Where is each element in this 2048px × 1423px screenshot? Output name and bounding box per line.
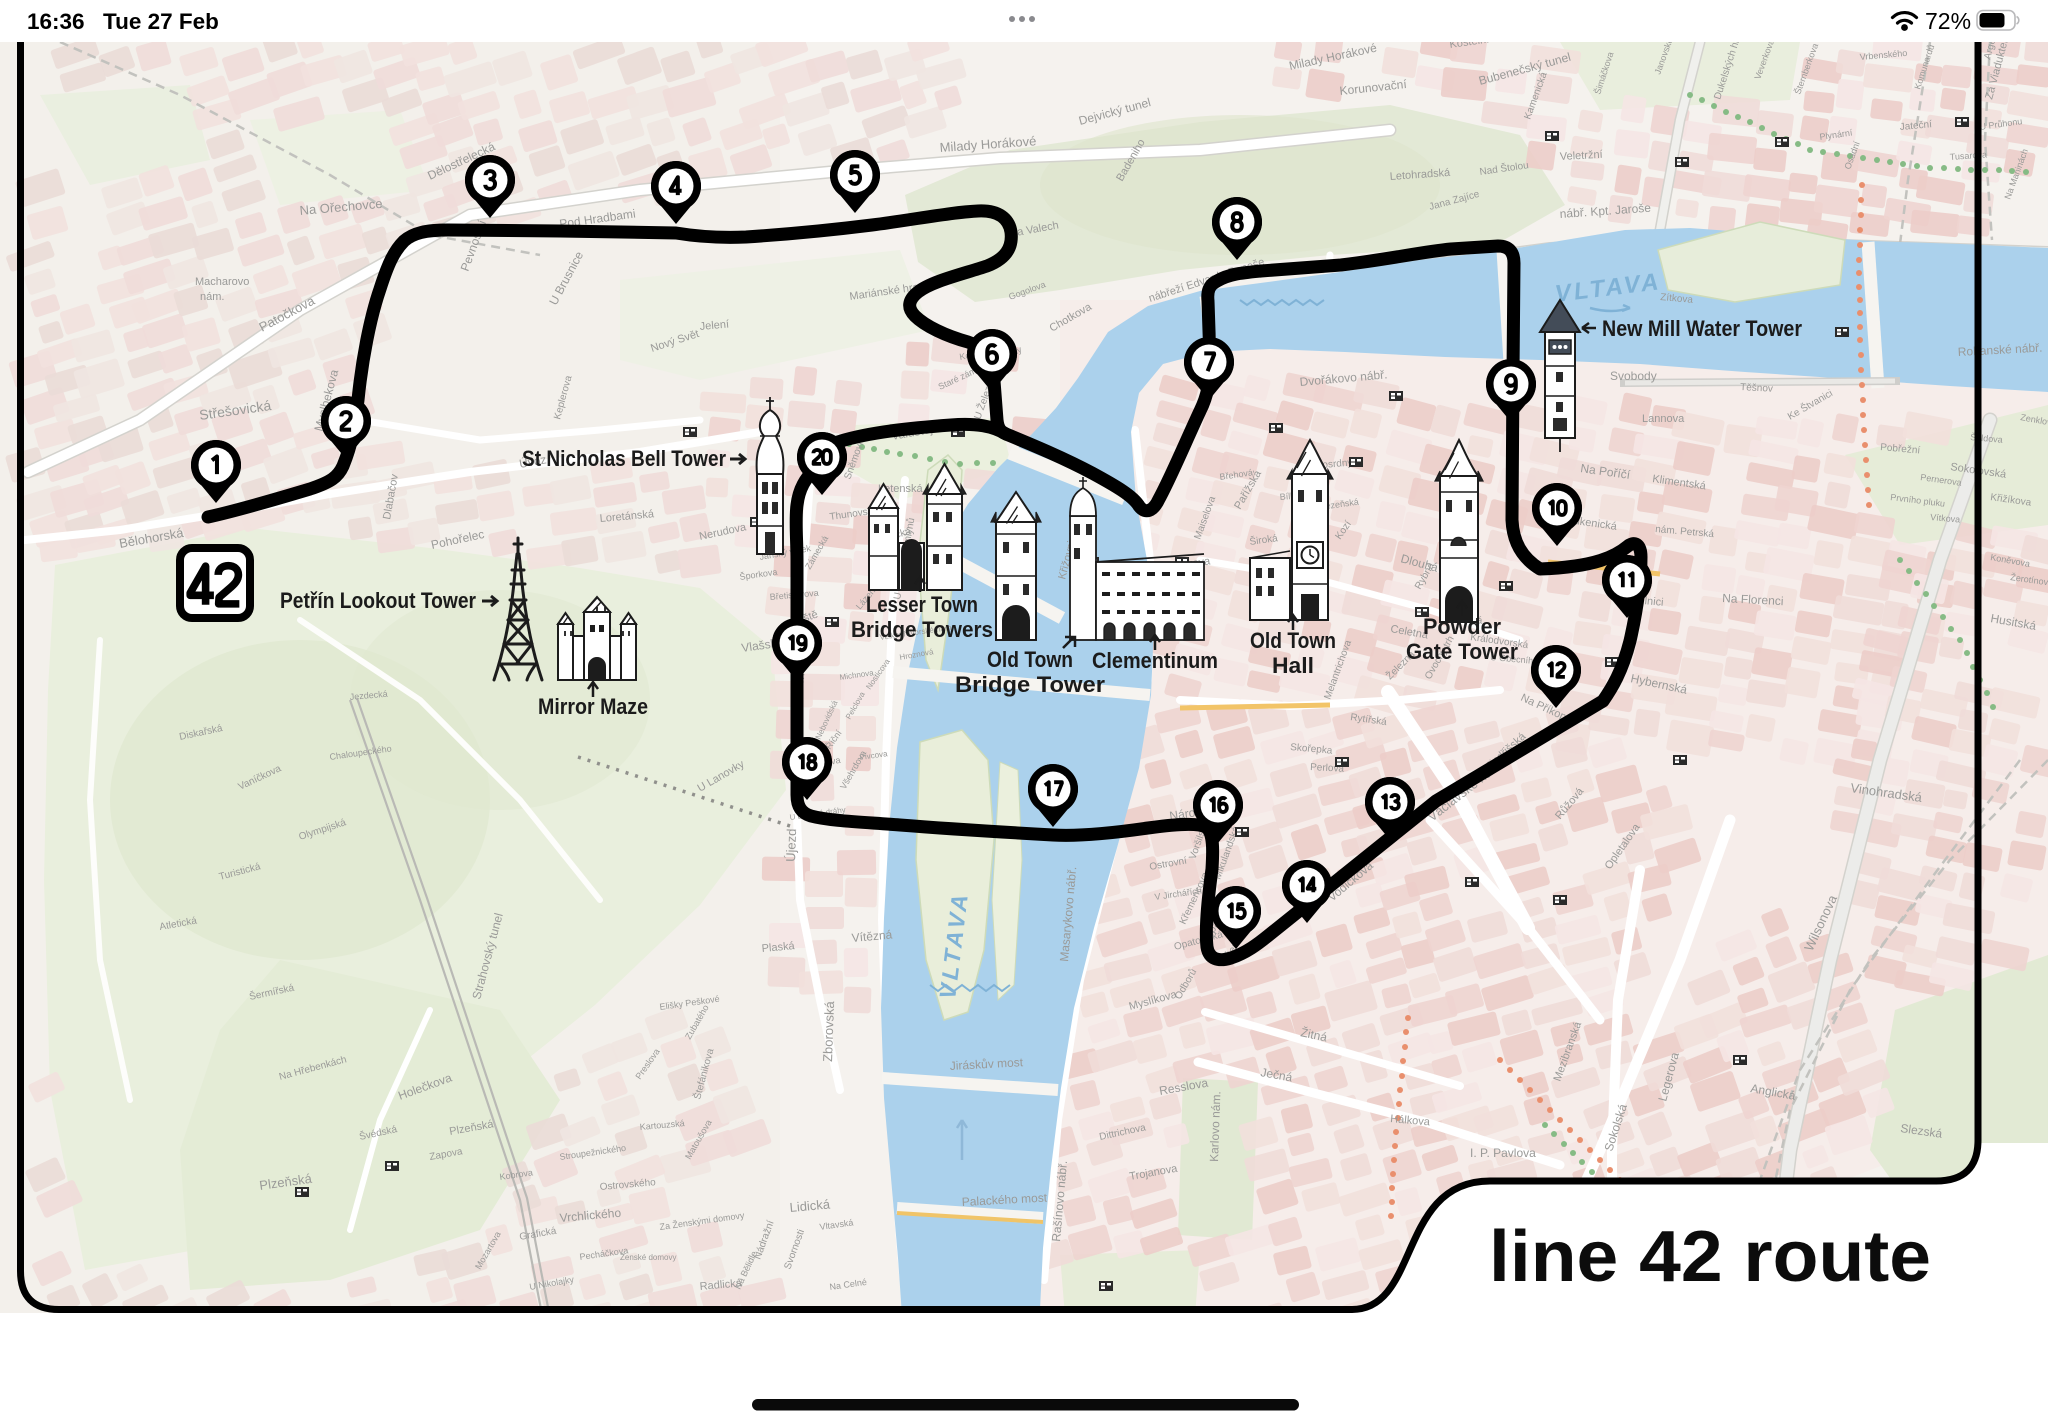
svg-text:nám.: nám. bbox=[200, 291, 224, 303]
svg-text:72%: 72% bbox=[1925, 8, 1971, 34]
svg-text:Karlovo nám.: Karlovo nám. bbox=[1207, 1091, 1223, 1162]
svg-text:Svobody: Svobody bbox=[1610, 369, 1657, 383]
svg-text:Tue 27 Feb: Tue 27 Feb bbox=[103, 9, 219, 34]
svg-text:Petřín Lookout Tower: Petřín Lookout Tower bbox=[280, 588, 476, 613]
svg-text:Bridge Tower: Bridge Tower bbox=[955, 672, 1105, 697]
svg-text:I. P. Pavlova: I. P. Pavlova bbox=[1470, 1146, 1536, 1160]
svg-text:Mirror Maze: Mirror Maze bbox=[538, 694, 648, 719]
svg-text:Macharovo: Macharovo bbox=[195, 276, 249, 288]
svg-text:Zborovská: Zborovská bbox=[820, 1000, 837, 1062]
svg-text:Old Town: Old Town bbox=[1250, 628, 1336, 653]
svg-text:New Mill Water Tower: New Mill Water Tower bbox=[1602, 316, 1802, 341]
svg-text:Powder: Powder bbox=[1423, 614, 1501, 639]
svg-text:line 42 route: line 42 route bbox=[1489, 1217, 1931, 1297]
svg-text:Clementinum: Clementinum bbox=[1092, 648, 1218, 673]
svg-text:Lesser Town: Lesser Town bbox=[866, 592, 978, 617]
svg-text:Lannova: Lannova bbox=[1642, 413, 1685, 425]
svg-text:Jelení: Jelení bbox=[699, 318, 729, 333]
svg-text:Ženské domovy: Ženské domovy bbox=[620, 1253, 676, 1262]
svg-text:Veletržní: Veletržní bbox=[1560, 149, 1603, 163]
svg-text:Gate Tower: Gate Tower bbox=[1406, 639, 1518, 664]
svg-text:Bridge Towers: Bridge Towers bbox=[851, 617, 993, 642]
svg-text:St Nicholas Bell Tower: St Nicholas Bell Tower bbox=[522, 446, 726, 471]
svg-text:Těšnov: Těšnov bbox=[1740, 382, 1773, 395]
svg-text:Újezd: Újezd bbox=[783, 828, 799, 862]
svg-text:16:36: 16:36 bbox=[27, 9, 85, 34]
svg-text:Hall: Hall bbox=[1272, 653, 1314, 678]
svg-text:Old Town: Old Town bbox=[987, 647, 1073, 672]
